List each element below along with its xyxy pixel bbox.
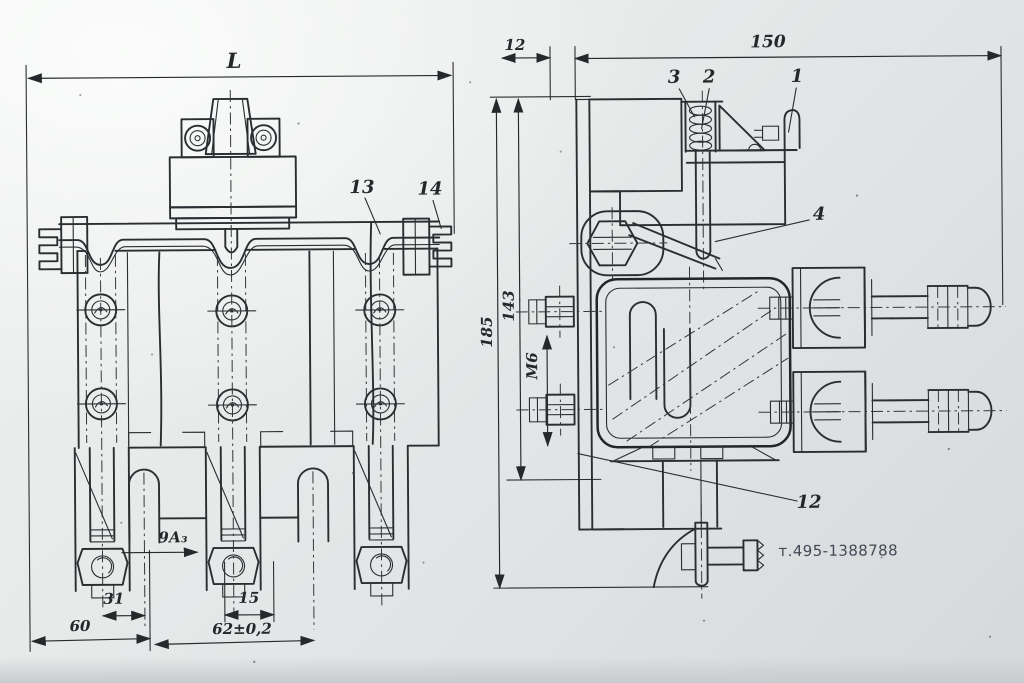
armature-pivot [569,207,723,282]
callout-14: 14 [417,178,442,199]
coil-base [493,446,780,588]
coil-assembly [596,266,790,471]
dim-label-185: 185 [478,316,496,347]
auxiliary-bracket [754,110,799,164]
dim-label-150: 150 [750,32,786,52]
callout-3: 3 [668,67,681,88]
mounting-plate [576,99,623,529]
bottom-dimensions: 9А₃ 31 15 60 62±0,2 [31,527,314,651]
dim-label-60: 60 [69,617,91,635]
contact-stud [758,371,1007,453]
dim-label-15: 15 [238,589,259,607]
dim-label-143: 143 [500,290,518,321]
dim-label-9a3: 9А₃ [158,528,188,546]
front-view: L [26,46,457,651]
scanned-drawing-paper: L [0,0,1024,683]
side-dimensions: 185 143 М6 [476,96,601,588]
arc-chute-cap [169,99,296,253]
side-view: 12 150 185 143 М6 [476,31,1008,601]
right-end-clamp [403,218,451,274]
dim-label-L: L [226,48,242,73]
callout-4: 4 [813,204,826,225]
contactor-assembly-drawing: L [0,0,1024,683]
dim-label-31: 31 [103,590,124,608]
bottom-clamp [653,503,764,599]
dim-label-62: 62±0,2 [212,620,272,638]
watermark-phone: т.495-1388788 [778,541,898,560]
dim-label-12-top: 12 [504,36,525,54]
callout-1: 1 [791,66,804,87]
callout-12: 12 [797,492,822,513]
contact-spring-bar [39,214,451,277]
contact-stud [757,267,1006,349]
callout-2: 2 [702,67,716,88]
left-end-clamp [39,217,87,273]
callout-13: 13 [349,177,374,198]
mounting-slots [129,468,329,630]
dim-label-m6: М6 [523,352,541,381]
